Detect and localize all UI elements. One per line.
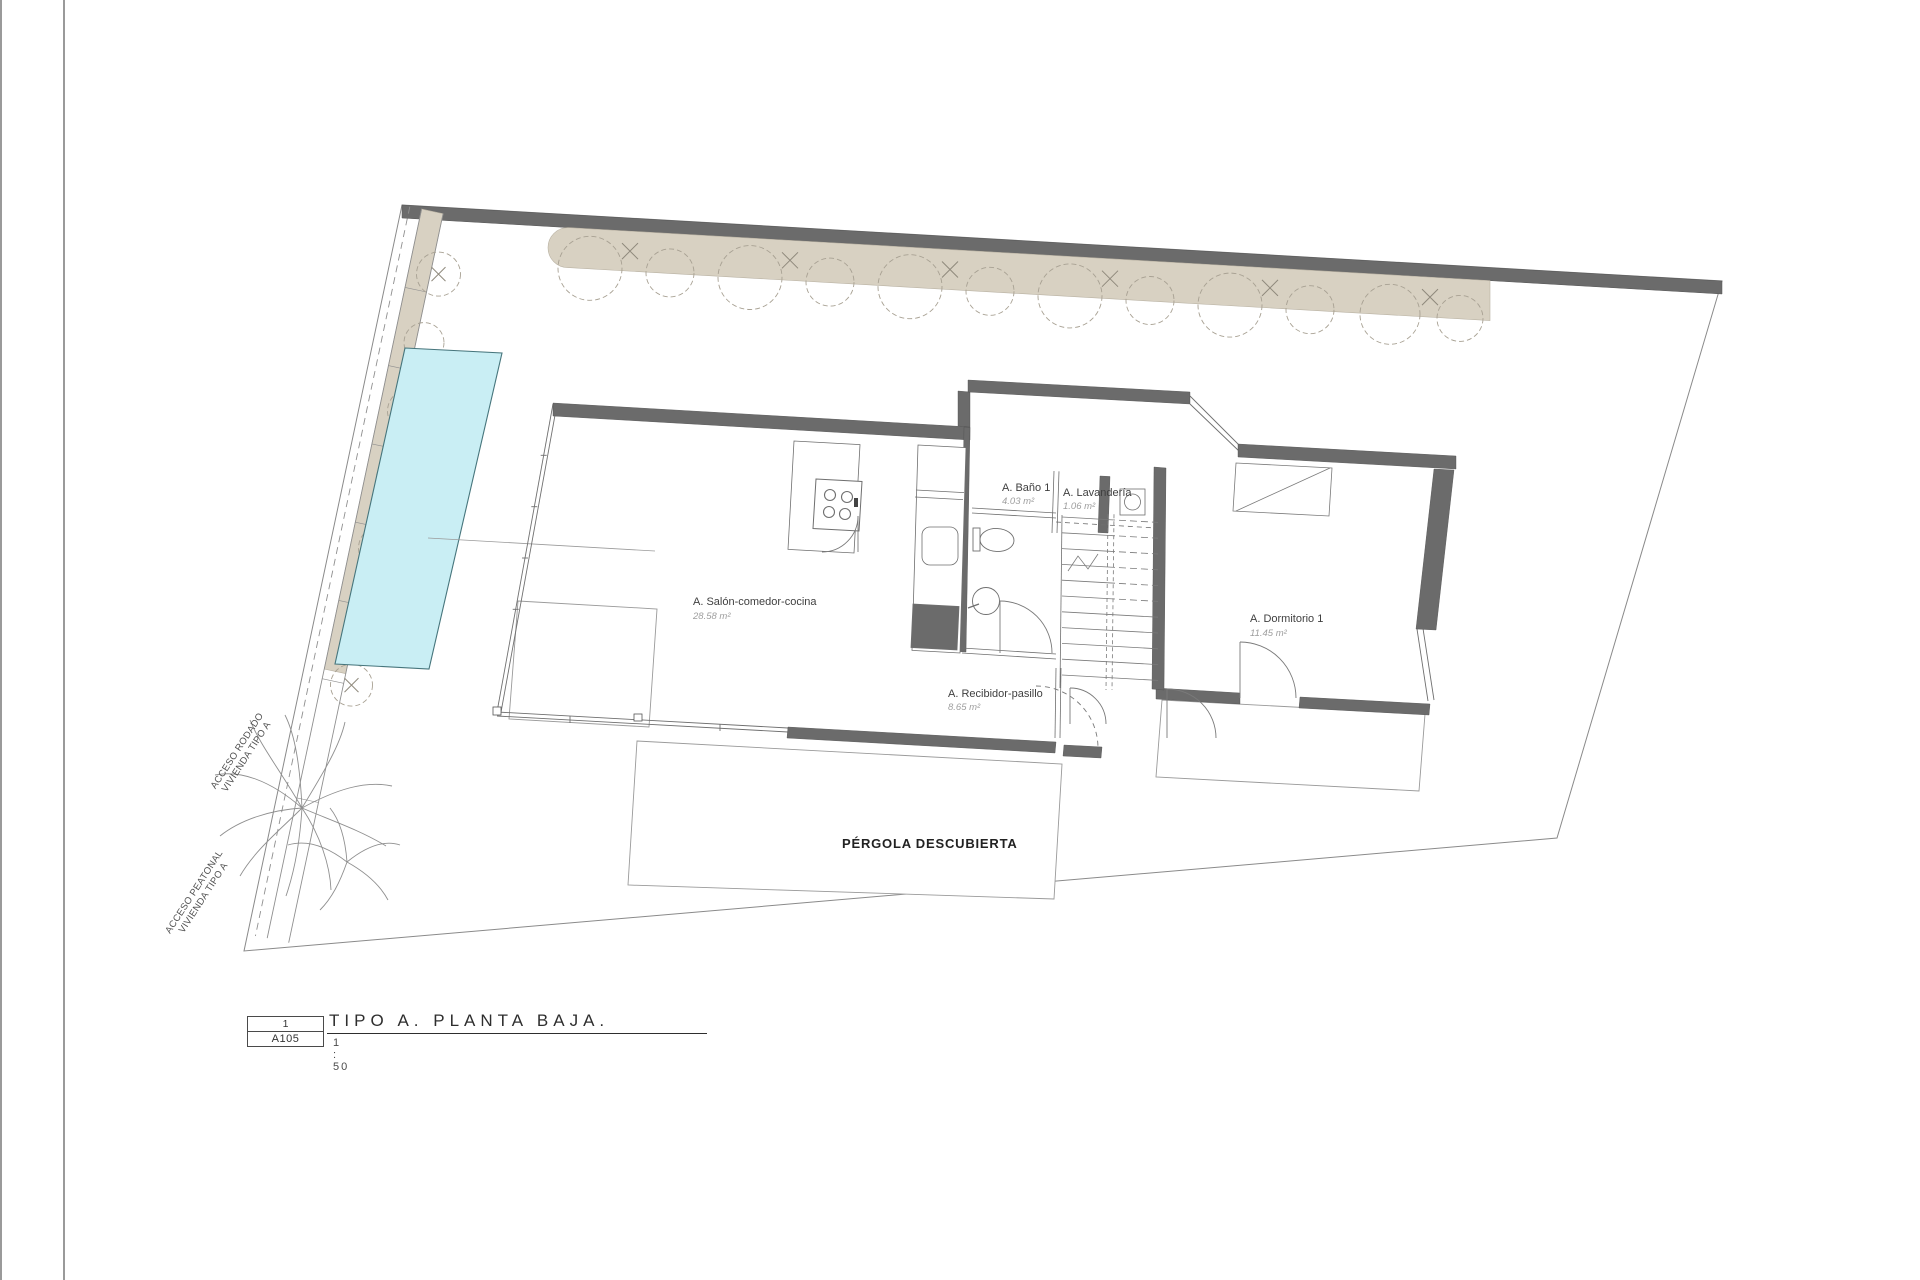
room-area-recibidor: 8.65 m² (948, 702, 981, 713)
wall-step (1063, 745, 1102, 758)
drawing-scale: 1 : 50 (333, 1037, 349, 1073)
room-label-bano: A. Baño 1 (1002, 482, 1050, 494)
terrace-outline-right (1156, 700, 1425, 791)
pergola-outline (628, 741, 1062, 899)
toilet-tank (973, 528, 980, 551)
room-area-lavanderia: 1.06 m² (1063, 501, 1096, 512)
title-block-box: 1 A105 (247, 1016, 324, 1047)
detail-number: 1 (248, 1017, 323, 1032)
washbasin-icon (973, 588, 1000, 615)
kitchen (788, 441, 862, 553)
room-label-lavanderia: A. Lavandería (1063, 487, 1132, 499)
cabinet-column (911, 445, 966, 653)
mullion-post (634, 714, 642, 721)
access-road-label: ACCESO RODADO VIVIENDA TIPO A (209, 711, 276, 797)
drawing-sheet: A. Salón-comedor-cocina 28.58 m² A. Baño… (0, 0, 1920, 1280)
sheet-code: A105 (248, 1032, 323, 1047)
cabinet-dark (911, 604, 959, 650)
hob-control (854, 498, 858, 507)
mullion-post (493, 707, 501, 715)
pergola-label: PÉRGOLA DESCUBIERTA (842, 836, 1018, 851)
terrace-outline (509, 601, 657, 727)
room-label-dormitorio: A. Dormitorio 1 (1250, 613, 1323, 625)
room-area-salon: 28.58 m² (692, 611, 731, 622)
kitchen-sink (922, 527, 958, 565)
wall-connector (958, 391, 970, 427)
room-area-bano: 4.03 m² (1002, 496, 1035, 507)
room-label-salon: A. Salón-comedor-cocina (693, 596, 817, 608)
drawing-title: TIPO A. PLANTA BAJA. (327, 1011, 707, 1034)
floor-plan-svg: A. Salón-comedor-cocina 28.58 m² A. Baño… (0, 0, 1920, 1280)
wall-stair-dorm (1152, 467, 1166, 690)
access-pedestrian-label: ACCESO PEATONAL VIVIENDA TIPO A (163, 848, 234, 941)
room-label-recibidor: A. Recibidor-pasillo (948, 688, 1043, 700)
room-area-dormitorio: 11.45 m² (1250, 628, 1288, 639)
access-pedestrian-line1: ACCESO PEATONAL (163, 848, 225, 935)
